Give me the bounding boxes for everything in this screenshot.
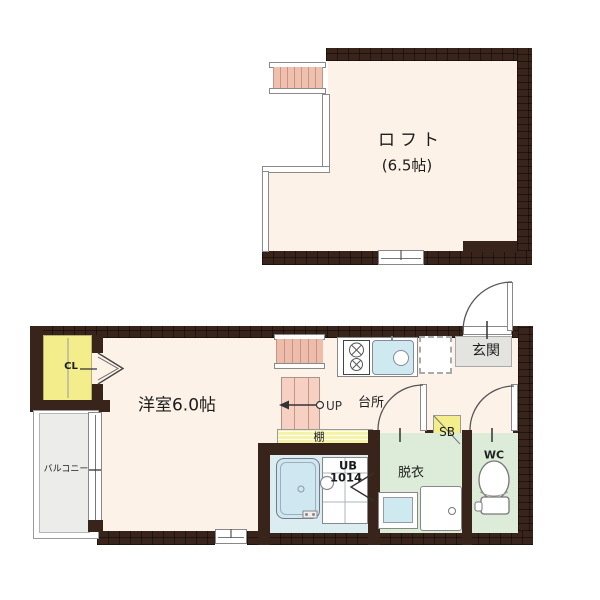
bathtub-drain-icon [298,486,304,492]
wc-label: WC [484,450,504,461]
stairs-arrow-origin [317,402,324,409]
wc-door-arc [470,386,514,430]
shelf-label: 棚 [314,432,325,443]
symbol-overlay [0,0,600,600]
shoe-box-label: SB [439,426,455,438]
closet-bifold-door [98,353,123,384]
dressing-room-label: 脱衣 [398,467,424,480]
loft-room-label: ロフト [378,133,444,150]
stairs-up-label: UP [326,400,342,412]
bath-faucet-icon [303,511,317,518]
entrance-label: 玄関 [472,344,500,358]
loft-size-label: (6.5帖) [382,159,433,174]
toilet-icon [475,461,509,514]
dressing-door-arc [378,385,423,430]
unit-bath-size-label: 1014 [330,472,362,484]
kitchen-label: 台所 [358,397,384,410]
western-room-label: 洋室6.0帖 [138,398,216,415]
stairs-arrow-head [279,401,289,410]
floorplan: ロフト (6.5帖) [0,0,600,600]
closet-bifold-door-inner [98,357,118,380]
balcony-label: バルコニー [44,466,89,475]
closet-label: CL [64,362,78,372]
stove-burners-icon [350,343,364,371]
